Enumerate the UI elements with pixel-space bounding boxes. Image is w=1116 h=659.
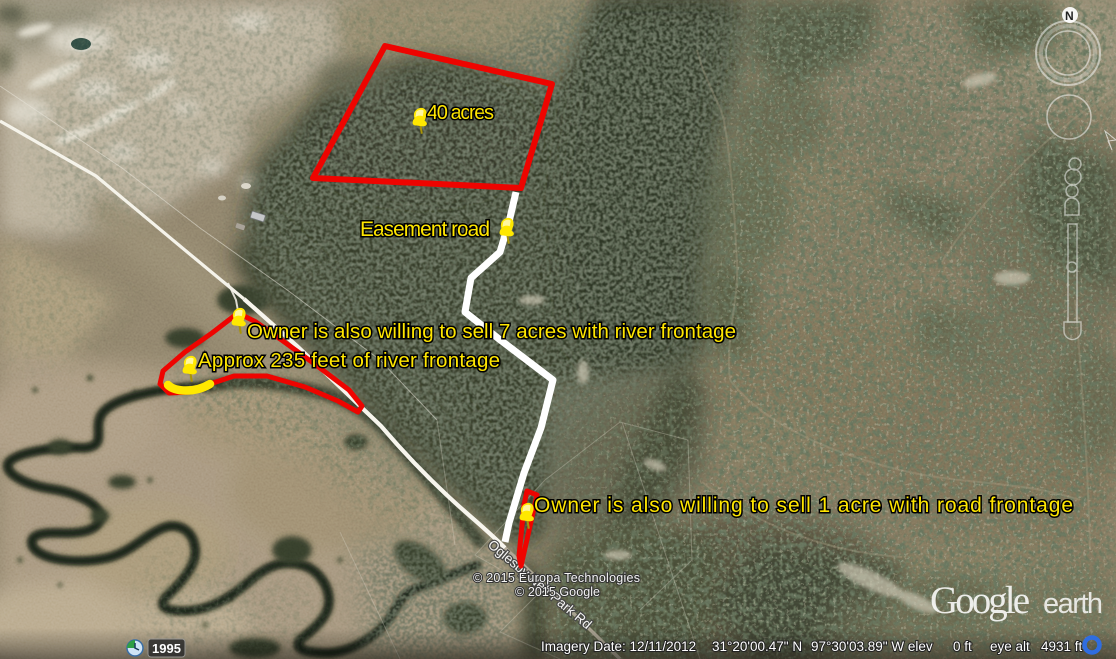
svg-text:1995: 1995 <box>152 641 181 656</box>
svg-text:© 2015 Google: © 2015 Google <box>515 585 600 599</box>
svg-text:31°20'00.47" N: 31°20'00.47" N <box>712 639 802 654</box>
svg-text:0 ft: 0 ft <box>953 639 972 654</box>
svg-text:Approx 235 feet of river front: Approx 235 feet of river frontage <box>198 349 500 372</box>
svg-text:Easement road: Easement road <box>360 218 490 241</box>
svg-text:97°30'03.89" W elev: 97°30'03.89" W elev <box>811 639 933 654</box>
svg-text:4931 ft: 4931 ft <box>1041 639 1083 654</box>
svg-text:Imagery Date: 12/11/2012: Imagery Date: 12/11/2012 <box>541 639 696 654</box>
svg-text:© 2015 Europa Technologies: © 2015 Europa Technologies <box>473 571 640 585</box>
svg-text:Owner is also willing to sell: Owner is also willing to sell 1 acre wit… <box>534 494 1073 517</box>
svg-text:Owner is also willing to sell: Owner is also willing to sell 7 acres wi… <box>247 320 736 343</box>
svg-text:40 acres: 40 acres <box>427 102 494 124</box>
svg-text:eye alt: eye alt <box>990 639 1030 654</box>
svg-text:earth: earth <box>1043 588 1104 620</box>
svg-text:N: N <box>1065 9 1074 23</box>
svg-text:Google: Google <box>930 579 1030 622</box>
